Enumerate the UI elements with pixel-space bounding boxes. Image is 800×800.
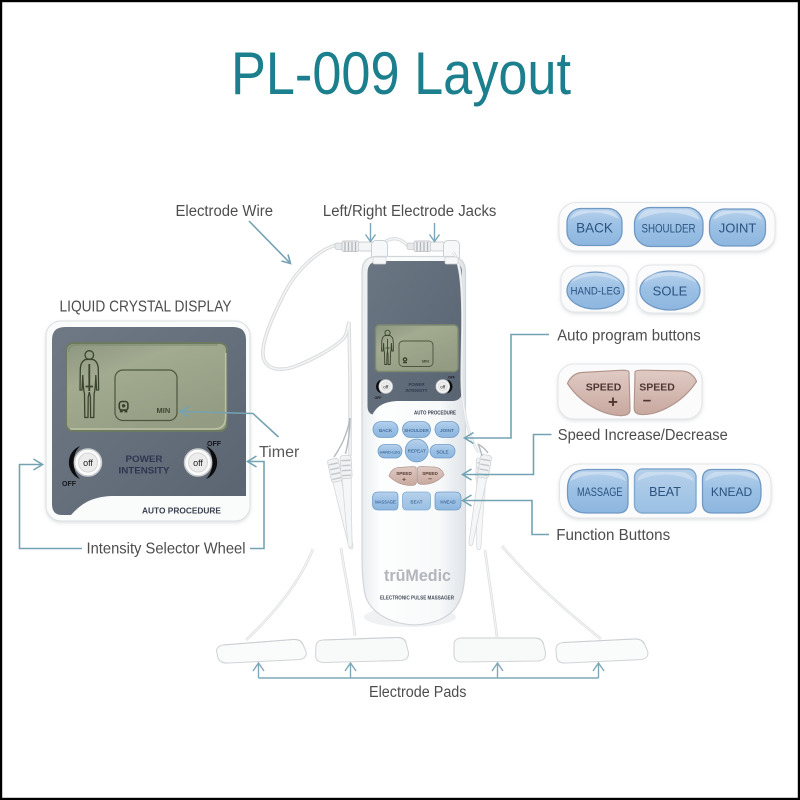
svg-text:BEAT: BEAT <box>410 500 422 506</box>
svg-text:OFF: OFF <box>62 481 77 488</box>
svg-text:MASSAGE: MASSAGE <box>375 500 396 505</box>
svg-text:Timer: Timer <box>259 444 300 461</box>
svg-text:off: off <box>440 384 446 389</box>
svg-text:BEAT: BEAT <box>649 485 681 499</box>
svg-text:INTENSITY: INTENSITY <box>119 466 171 477</box>
svg-text:SHOULDER: SHOULDER <box>404 428 428 433</box>
svg-text:Left/Right Electrode Jacks: Left/Right Electrode Jacks <box>323 203 497 220</box>
svg-text:Intensity Selector Wheel: Intensity Selector Wheel <box>87 541 246 558</box>
svg-text:INTENSITY: INTENSITY <box>406 388 429 394</box>
svg-text:POWER: POWER <box>126 454 163 465</box>
svg-text:MIN: MIN <box>422 360 429 364</box>
svg-text:−: − <box>643 393 652 410</box>
svg-text:OFF: OFF <box>375 396 382 400</box>
svg-text:REPEAT: REPEAT <box>408 449 426 454</box>
svg-text:ELECTRONIC PULSE MASSAGER: ELECTRONIC PULSE MASSAGER <box>380 596 454 602</box>
svg-text:KNEAD: KNEAD <box>440 500 455 505</box>
svg-text:PL-009 Layout: PL-009 Layout <box>231 40 571 107</box>
svg-text:HAND-LEG: HAND-LEG <box>380 450 401 455</box>
svg-text:off: off <box>83 458 93 468</box>
svg-text:SOLE: SOLE <box>653 284 688 299</box>
svg-text:JOINT: JOINT <box>440 428 454 434</box>
svg-text:Function Buttons: Function Buttons <box>556 527 670 544</box>
svg-text:−: − <box>428 476 432 483</box>
svg-text:POWER: POWER <box>409 382 425 388</box>
svg-text:KNEAD: KNEAD <box>711 485 753 499</box>
svg-text:Electrode Wire: Electrode Wire <box>176 203 274 220</box>
svg-text:MASSAGE: MASSAGE <box>577 487 623 499</box>
svg-text:MIN: MIN <box>157 406 171 415</box>
svg-text:BACK: BACK <box>576 221 613 236</box>
svg-text:+: + <box>402 477 406 484</box>
svg-text:Electrode Pads: Electrode Pads <box>369 684 467 701</box>
svg-text:Auto program buttons: Auto program buttons <box>557 328 701 345</box>
svg-text:AUTO PROCEDURE: AUTO PROCEDURE <box>414 411 457 417</box>
svg-text:off: off <box>193 458 203 468</box>
svg-text:SOLE: SOLE <box>436 450 448 455</box>
svg-text:+: + <box>608 393 618 412</box>
svg-text:OFF: OFF <box>207 441 222 448</box>
svg-text:LIQUID CRYSTAL DISPLAY: LIQUID CRYSTAL DISPLAY <box>60 299 232 316</box>
svg-text:trūMedic: trūMedic <box>384 566 451 585</box>
svg-text:JOINT: JOINT <box>719 221 757 236</box>
svg-text:off: off <box>383 384 389 389</box>
svg-text:Speed Increase/Decrease: Speed Increase/Decrease <box>558 427 728 444</box>
svg-text:OFF: OFF <box>448 376 455 380</box>
svg-text:SHOULDER: SHOULDER <box>642 222 696 236</box>
svg-text:AUTO PROCEDURE: AUTO PROCEDURE <box>142 506 221 516</box>
svg-text:SPEED: SPEED <box>396 471 412 476</box>
svg-text:BACK: BACK <box>379 428 393 434</box>
svg-text:HAND-LEG: HAND-LEG <box>571 286 621 298</box>
